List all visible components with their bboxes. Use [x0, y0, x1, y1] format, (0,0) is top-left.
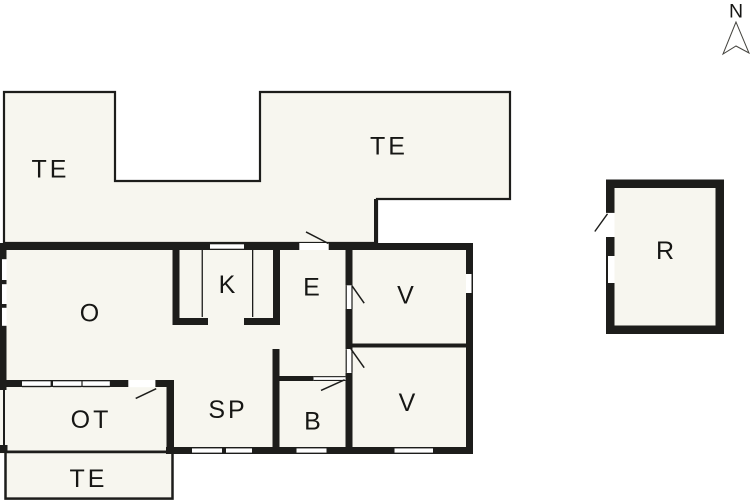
svg-text:N: N	[729, 1, 743, 23]
svg-text:TE: TE	[370, 133, 408, 161]
svg-text:K: K	[219, 271, 239, 299]
svg-text:TE: TE	[70, 465, 108, 493]
svg-text:B: B	[304, 407, 324, 435]
svg-text:E: E	[303, 273, 323, 301]
svg-text:V: V	[397, 282, 417, 310]
svg-text:O: O	[80, 300, 102, 328]
svg-text:SP: SP	[208, 396, 247, 424]
svg-text:R: R	[656, 237, 677, 265]
svg-text:TE: TE	[32, 156, 70, 184]
svg-text:V: V	[399, 389, 419, 417]
svg-text:OT: OT	[71, 406, 112, 434]
